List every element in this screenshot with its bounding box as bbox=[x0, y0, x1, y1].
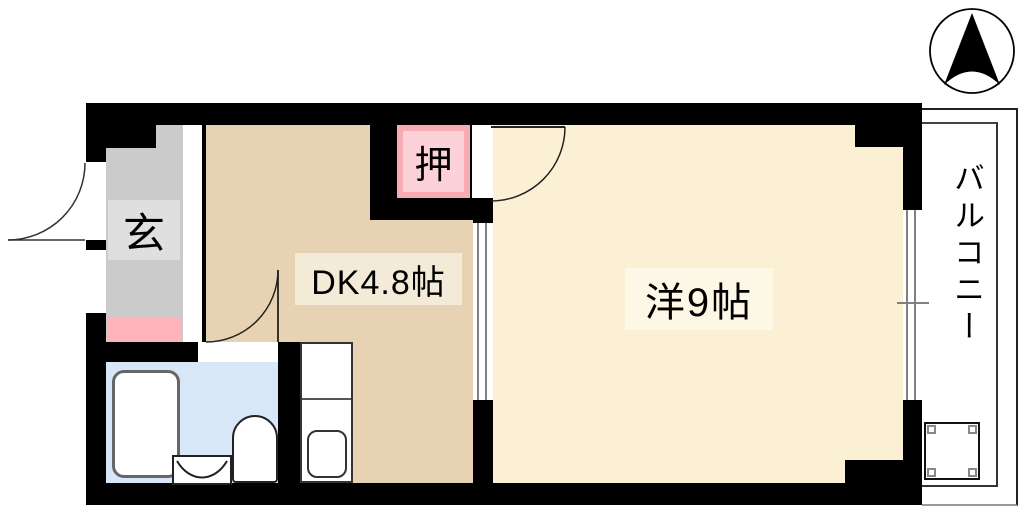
bathtub bbox=[112, 370, 180, 478]
wall-top bbox=[86, 103, 922, 125]
washing-machine-pan bbox=[924, 422, 980, 480]
pan-corner bbox=[927, 425, 936, 434]
kitchen-counter-divider bbox=[302, 398, 351, 400]
balcony-window-line bbox=[906, 210, 908, 400]
wall-top-right-block bbox=[855, 103, 903, 147]
wall-right-upper bbox=[903, 103, 922, 210]
sliding-door bbox=[473, 223, 493, 400]
balcony-window bbox=[903, 210, 922, 400]
western-room-label: 洋9帖 bbox=[645, 270, 753, 328]
sliding-door-line bbox=[477, 223, 479, 400]
pan-corner bbox=[927, 468, 936, 477]
entrance-label: 玄 bbox=[123, 200, 165, 261]
dk-label: DK4.8帖 bbox=[311, 255, 446, 304]
sliding-door-line bbox=[485, 223, 487, 400]
kitchen-sink bbox=[307, 430, 347, 478]
closet-floor: 押 bbox=[397, 125, 470, 198]
balcony-label: バルコニー bbox=[944, 162, 989, 412]
pan-corner bbox=[968, 425, 977, 434]
bathroom-door-arc bbox=[202, 266, 282, 346]
entrance-mat bbox=[108, 318, 181, 342]
wall-divider-lower bbox=[473, 400, 493, 483]
wall-bottom bbox=[86, 483, 922, 505]
entrance-door-arc bbox=[4, 156, 90, 246]
wall-bottom-right-block bbox=[845, 460, 922, 505]
wall-closet-bottom bbox=[370, 198, 473, 220]
north-arrow-icon bbox=[928, 7, 1016, 95]
entrance-label-box: 玄 bbox=[108, 200, 180, 260]
closet-label: 押 bbox=[414, 134, 452, 189]
pan-corner bbox=[968, 468, 977, 477]
wall-left-a bbox=[86, 103, 106, 162]
entrance-step-strip bbox=[183, 125, 202, 342]
closet-label-box: 押 bbox=[403, 131, 464, 192]
floor-plan: バルコニー 押 玄 bbox=[0, 0, 1029, 517]
toilet bbox=[232, 415, 278, 483]
balcony-window-latch-tick bbox=[897, 302, 929, 304]
wash-basin bbox=[172, 455, 232, 485]
balcony-window-line bbox=[914, 210, 916, 400]
western-room-door-arc bbox=[489, 123, 569, 203]
dk-label-box: DK4.8帖 bbox=[295, 253, 462, 305]
western-room-label-box: 洋9帖 bbox=[625, 268, 773, 330]
wash-basin-bowl bbox=[174, 457, 230, 483]
wall-bathroom-top bbox=[86, 342, 198, 362]
wall-bathroom-kitchen bbox=[278, 342, 300, 483]
